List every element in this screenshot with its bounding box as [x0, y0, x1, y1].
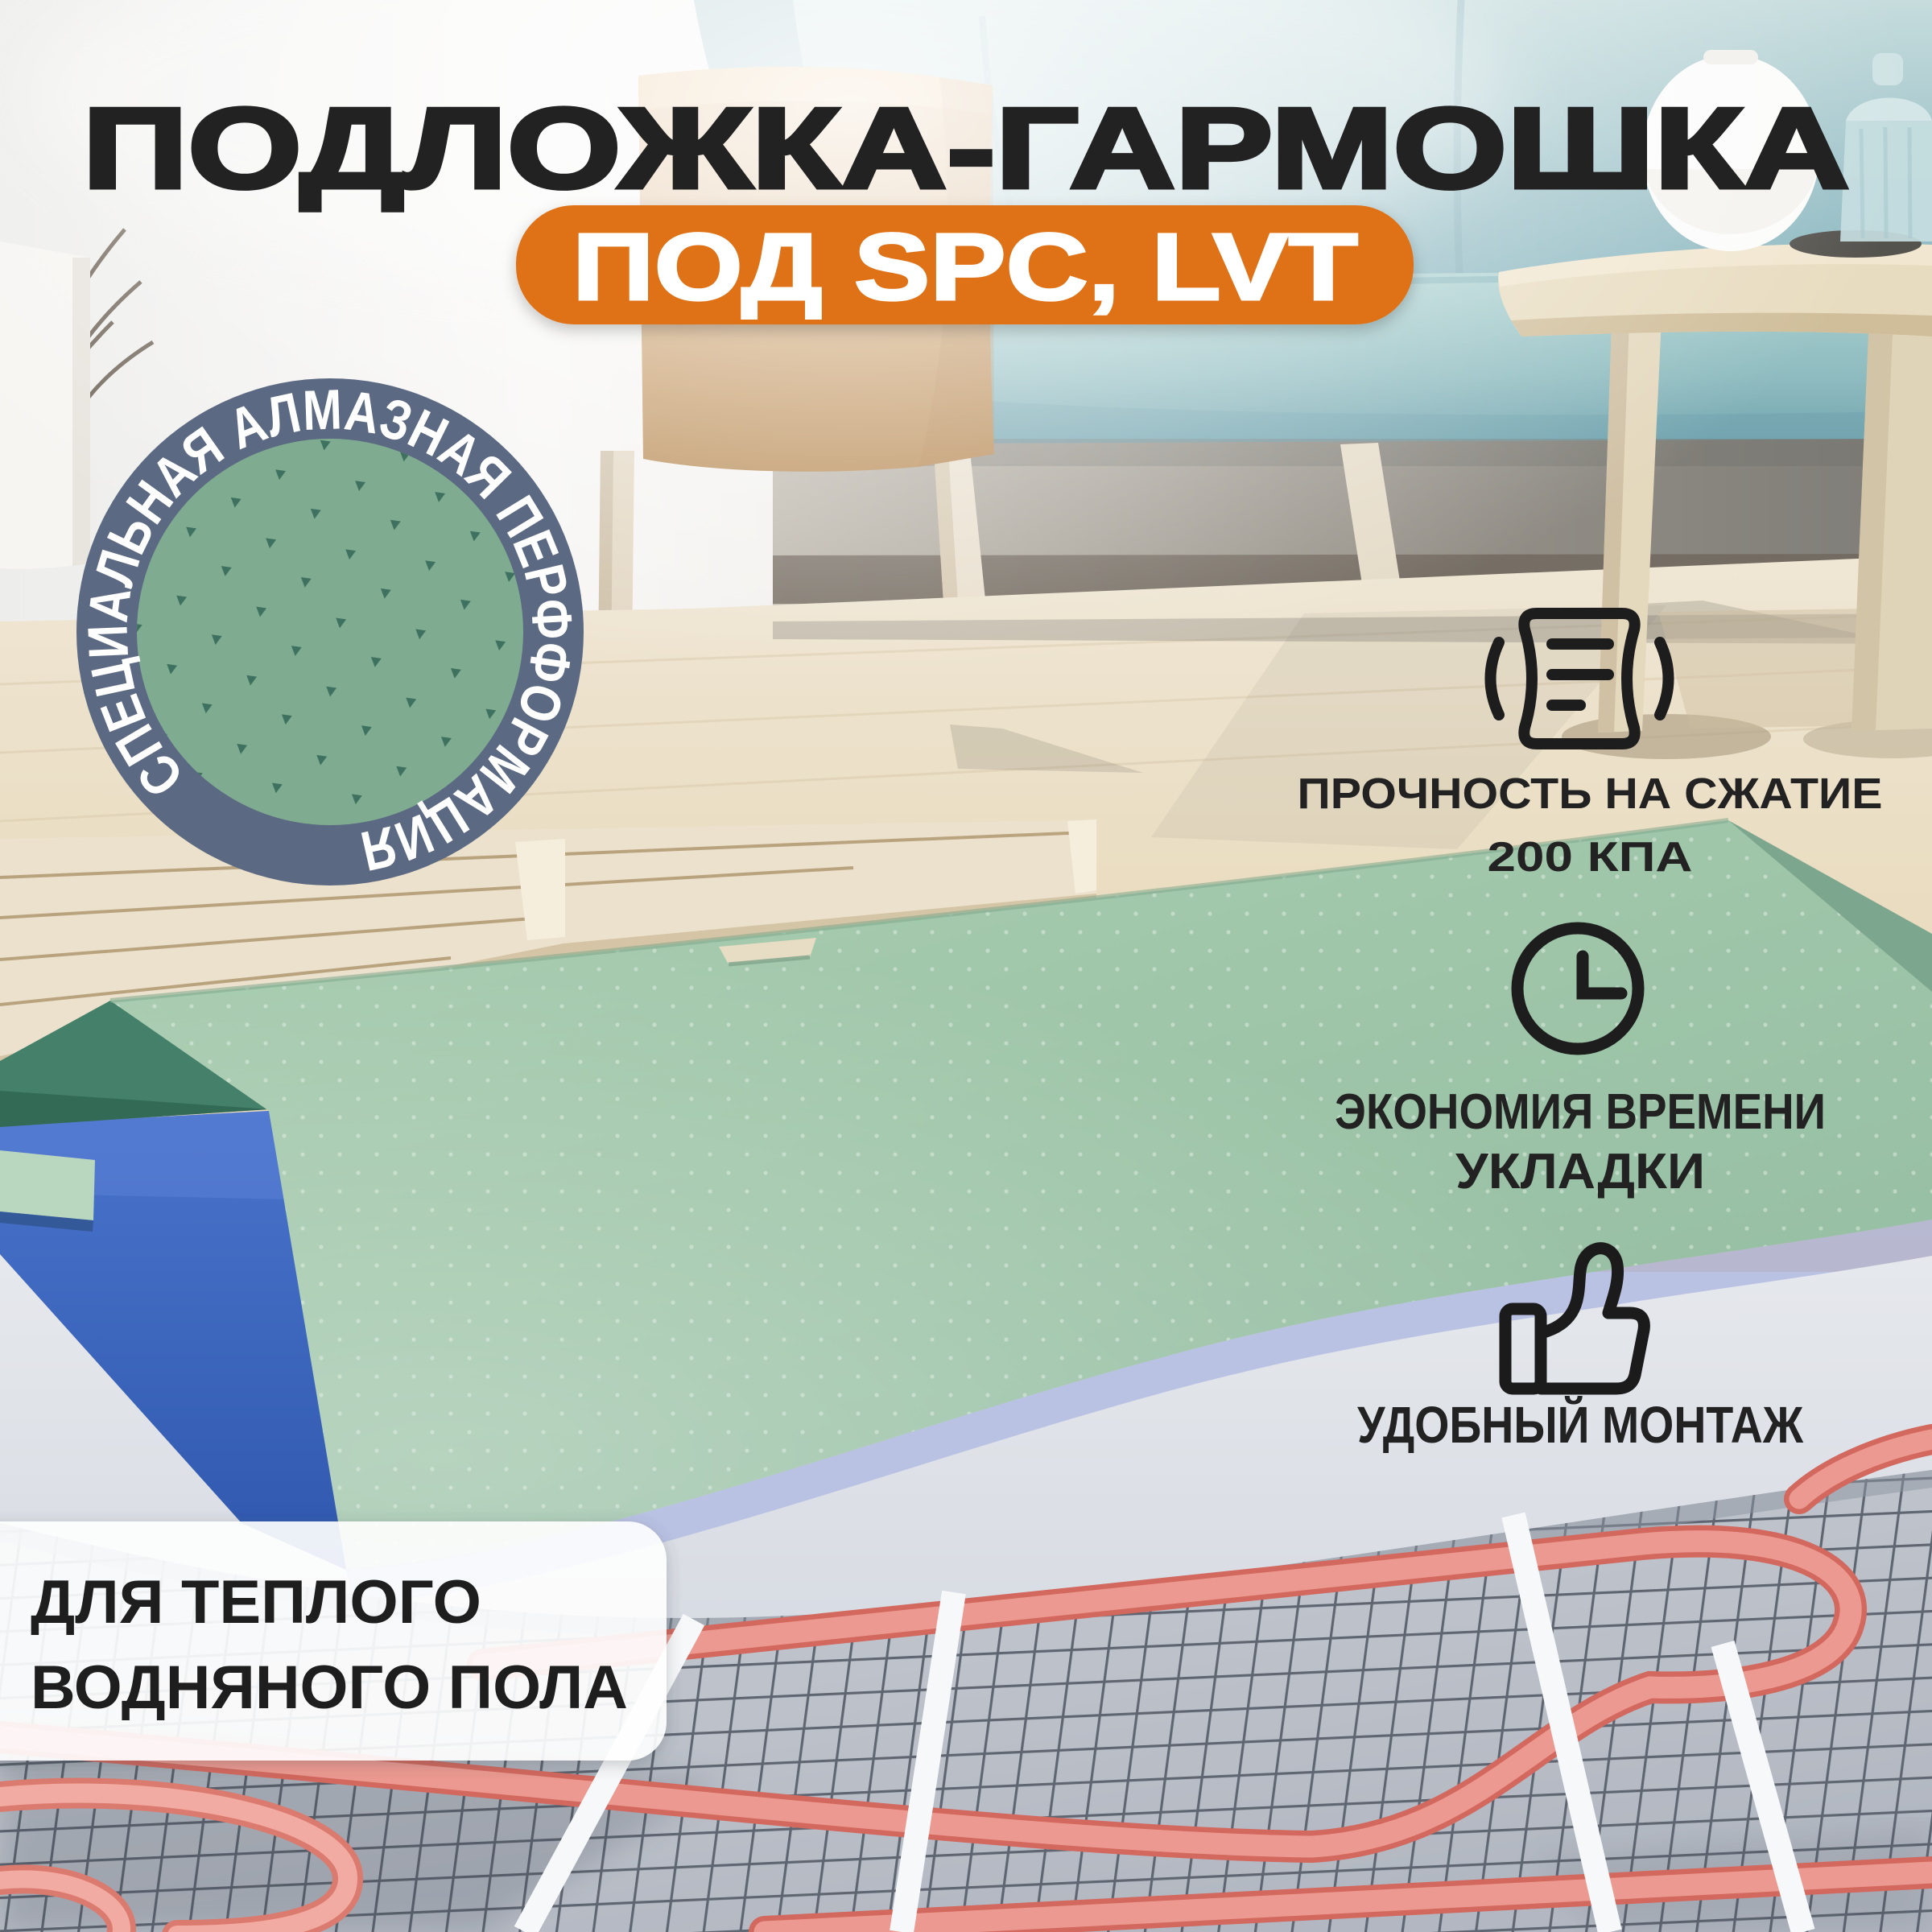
svg-text:ДЛЯ ТЕПЛОГО: ДЛЯ ТЕПЛОГО — [31, 1568, 481, 1637]
svg-text:ПОДЛОЖКА-ГАРМОШКА: ПОДЛОЖКА-ГАРМОШКА — [83, 85, 1850, 213]
svg-text:ЭКОНОМИЯ ВРЕМЕНИ: ЭКОНОМИЯ ВРЕМЕНИ — [1335, 1084, 1826, 1140]
svg-text:УДОБНЫЙ МОНТАЖ: УДОБНЫЙ МОНТАЖ — [1357, 1395, 1804, 1454]
svg-text:УКЛАДКИ: УКЛАДКИ — [1455, 1144, 1705, 1199]
svg-text:200 КПА: 200 КПА — [1488, 834, 1693, 881]
svg-text:ПРОЧНОСТЬ НА СЖАТИЕ: ПРОЧНОСТЬ НА СЖАТИЕ — [1298, 770, 1883, 818]
svg-text:ВОДНЯНОГО ПОЛА: ВОДНЯНОГО ПОЛА — [31, 1653, 628, 1722]
svg-text:ПОД SPC, LVT: ПОД SPC, LVT — [572, 214, 1358, 320]
